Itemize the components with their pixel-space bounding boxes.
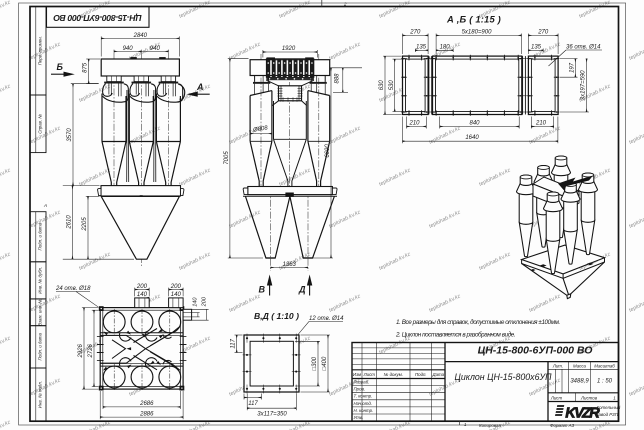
svg-text:□300: □300 (312, 356, 318, 370)
svg-text:Подп.: Подп. (415, 372, 427, 377)
svg-text:140: 140 (137, 292, 148, 298)
svg-text:Копировал: Копировал (479, 423, 501, 428)
svg-text:Масштаб: Масштаб (594, 364, 615, 369)
svg-text:888: 888 (335, 73, 341, 84)
svg-text:117: 117 (248, 401, 258, 407)
svg-text:Инв. № дубл.: Инв. № дубл. (38, 267, 43, 294)
svg-text:ЦН-15-800-6УП-000 ВО: ЦН-15-800-6УП-000 ВО (53, 13, 142, 23)
svg-text:Циклон ЦН-15-800х6УП: Циклон ЦН-15-800х6УП (455, 372, 553, 382)
svg-text:2926: 2926 (78, 343, 84, 358)
svg-text:Формат А3: Формат А3 (550, 423, 575, 428)
svg-text:Масса: Масса (573, 364, 587, 369)
svg-text:№ докум.: № докум. (384, 372, 403, 377)
svg-text:6690: 6690 (325, 144, 331, 158)
svg-text:Нач.отд.: Нач.отд. (354, 401, 373, 406)
svg-text:2. Циклон поставляется в разоб: 2. Циклон поставляется в разобранном вид… (395, 331, 515, 339)
svg-text:Подп. и дата: Подп. и дата (38, 222, 43, 250)
svg-text:3x117=350: 3x117=350 (257, 412, 287, 418)
svg-text:1920: 1920 (282, 46, 296, 52)
svg-text:завод РЗП: завод РЗП (596, 412, 619, 417)
svg-text:Лист: Лист (550, 395, 563, 400)
svg-text:ЦН-15-800-6УП-000 ВО: ЦН-15-800-6УП-000 ВО (478, 345, 593, 357)
svg-text:140: 140 (171, 292, 182, 298)
svg-text:7005: 7005 (224, 151, 230, 165)
svg-text:180: 180 (440, 44, 451, 50)
svg-text:2726: 2726 (88, 343, 94, 358)
svg-text:2886: 2886 (139, 411, 154, 417)
svg-text:3488,9: 3488,9 (570, 379, 589, 385)
svg-text:Т. контр.: Т. контр. (354, 394, 373, 399)
svg-text:940: 940 (150, 46, 161, 52)
svg-text:А: А (196, 82, 204, 92)
svg-text:2686: 2686 (139, 401, 154, 407)
svg-text:630: 630 (379, 80, 385, 91)
svg-text:Б: Б (57, 62, 64, 72)
svg-text:1. Все размеры для справок, до: 1. Все размеры для справок, допустимые о… (396, 318, 560, 326)
svg-text:Утв.: Утв. (354, 415, 364, 420)
svg-text:1640: 1640 (465, 135, 479, 141)
svg-text:3570: 3570 (67, 128, 73, 142)
svg-text:В,Д ( 1:10 ): В,Д ( 1:10 ) (254, 311, 299, 321)
svg-text:530: 530 (389, 80, 395, 91)
svg-text:2205: 2205 (82, 217, 88, 232)
svg-text:2: 2 (343, 1, 347, 6)
svg-text:Перв. примен.: Перв. примен. (38, 36, 43, 65)
svg-text:1363: 1363 (283, 262, 297, 268)
svg-text:2610: 2610 (66, 215, 72, 230)
svg-text:200: 200 (202, 296, 208, 307)
svg-text:Пров.: Пров. (354, 387, 366, 392)
svg-text:А ,Б ( 1:15 ): А ,Б ( 1:15 ) (446, 14, 501, 25)
svg-text:200: 200 (170, 284, 182, 290)
svg-text:117: 117 (231, 338, 237, 348)
svg-text:3x197=590: 3x197=590 (581, 70, 587, 101)
svg-text:Н. контр.: Н. контр. (354, 408, 374, 413)
svg-text:Изм: Изм (353, 372, 361, 377)
svg-text:140: 140 (193, 297, 199, 307)
svg-text:Дата: Дата (432, 372, 445, 377)
svg-text:Листов: Листов (580, 395, 598, 400)
svg-text:Взам. инв. №: Взам. инв. № (38, 298, 43, 325)
svg-text:12 отв. Ø14: 12 отв. Ø14 (309, 316, 344, 322)
svg-text:Котельный: Котельный (597, 405, 621, 410)
svg-text:А: А (43, 203, 47, 208)
svg-text:197: 197 (569, 62, 575, 73)
svg-text:875: 875 (83, 62, 89, 73)
svg-text:Лист: Лист (363, 372, 376, 377)
svg-text:В: В (259, 285, 266, 295)
svg-text:5x180=900: 5x180=900 (462, 30, 493, 36)
svg-text:940: 940 (123, 46, 134, 52)
svg-text:135: 135 (531, 44, 542, 50)
svg-text:840: 840 (469, 120, 480, 126)
svg-text:210: 210 (535, 120, 547, 126)
svg-text:210: 210 (408, 120, 420, 126)
svg-text:Подп. и дата: Подп. и дата (38, 333, 43, 361)
svg-text:□400: □400 (322, 356, 328, 370)
svg-text:36 отв. Ø14: 36 отв. Ø14 (566, 45, 601, 51)
svg-text:24 отв. Ø18: 24 отв. Ø18 (55, 286, 91, 292)
svg-text:Разраб.: Разраб. (354, 380, 370, 385)
svg-text:Д: Д (298, 285, 306, 295)
svg-text:2840: 2840 (133, 33, 148, 39)
svg-text:1 : 50: 1 : 50 (597, 379, 613, 385)
svg-text:Инв. № подл.: Инв. № подл. (38, 381, 43, 408)
svg-text:KVZR: KVZR (565, 406, 600, 422)
svg-text:270: 270 (409, 30, 421, 36)
svg-text:270: 270 (537, 30, 549, 36)
svg-text:Справ. №: Справ. № (38, 114, 43, 134)
svg-text:135: 135 (416, 44, 427, 50)
svg-text:Лит.: Лит. (552, 364, 563, 369)
svg-text:200: 200 (136, 284, 148, 290)
